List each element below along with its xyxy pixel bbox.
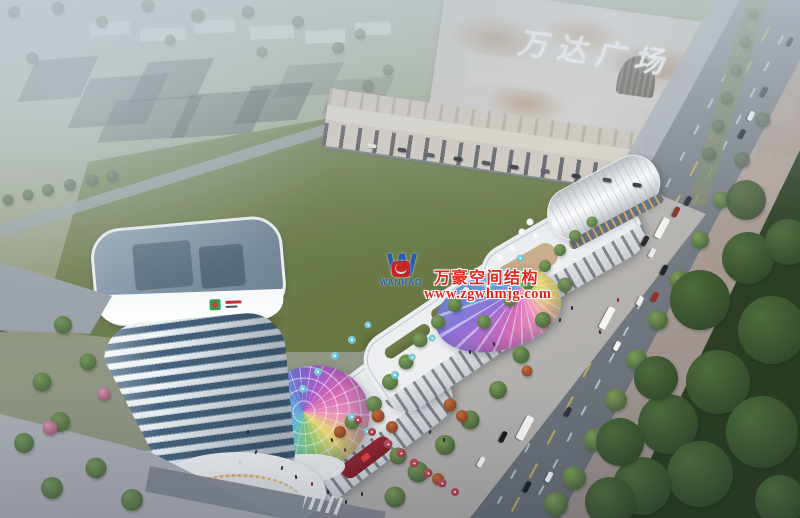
trees-sprite xyxy=(444,399,457,412)
umbrellas-sprite xyxy=(451,488,459,496)
people-sprite xyxy=(247,430,249,434)
umbrellas-sprite xyxy=(391,371,399,379)
trees-sprite xyxy=(23,190,34,201)
trees-sprite xyxy=(3,195,14,206)
trees-sprite xyxy=(362,80,374,92)
trees-sprite xyxy=(691,231,709,249)
trees-sprite xyxy=(242,6,255,19)
trees-sprite xyxy=(648,310,668,330)
tower-logo-text-bar xyxy=(225,300,241,304)
people-sprite xyxy=(443,438,446,442)
umbrellas-sprite xyxy=(348,336,356,344)
trees-sprite xyxy=(667,441,733,507)
trees-sprite xyxy=(522,366,533,377)
trees-sprite xyxy=(670,270,730,330)
trees-sprite xyxy=(383,65,394,76)
trees-sprite xyxy=(738,296,800,364)
umbrellas-sprite xyxy=(354,416,362,424)
umbrellas-sprite xyxy=(368,428,376,436)
umbrellas-sprite xyxy=(397,449,406,458)
umbrellas-sprite xyxy=(509,245,516,252)
trees-sprite xyxy=(334,426,346,438)
trees-sprite xyxy=(456,410,468,422)
people-sprite xyxy=(295,475,298,479)
people-sprite xyxy=(311,482,313,486)
trees-sprite xyxy=(257,47,268,58)
trees-sprite xyxy=(721,92,734,105)
tower-logo-text-bar xyxy=(226,305,238,307)
umbrellas-sprite xyxy=(299,385,307,393)
people-sprite xyxy=(361,492,363,496)
trees-sprite xyxy=(86,174,98,186)
watermark-website-url: www.zgwhmjg.com xyxy=(424,286,552,303)
trees-sprite xyxy=(80,354,97,371)
umbrellas-sprite xyxy=(365,322,372,329)
umbrellas-sprite xyxy=(527,219,534,226)
trees-sprite xyxy=(726,396,798,468)
trees-sprite xyxy=(386,421,398,433)
roof-plant-box xyxy=(132,240,194,291)
watermark-logo: W WANHAO xyxy=(372,250,430,304)
watermark-logo-badge xyxy=(392,261,410,277)
trees-sprite xyxy=(64,179,76,191)
trees-sprite xyxy=(52,2,65,15)
trees-sprite xyxy=(730,64,742,76)
trees-sprite xyxy=(739,36,751,48)
umbrellas-sprite xyxy=(519,229,526,236)
trees-sprite xyxy=(332,42,344,54)
trees-sprite xyxy=(165,35,176,46)
trees-sprite xyxy=(33,373,52,392)
trees-sprite xyxy=(756,113,771,128)
trees-sprite xyxy=(634,356,678,400)
trees-sprite xyxy=(477,315,491,329)
umbrellas-sprite xyxy=(409,354,416,361)
trees-sprite xyxy=(43,421,58,436)
trees-sprite xyxy=(587,217,598,228)
umbrellas-sprite xyxy=(517,255,524,262)
umbrellas-sprite xyxy=(429,335,436,342)
umbrellas-sprite xyxy=(331,352,339,360)
trees-sprite xyxy=(513,347,530,364)
trees-sprite xyxy=(712,120,725,133)
trees-sprite xyxy=(748,9,759,20)
watermark-company-name: 万豪空间结构 xyxy=(434,264,539,288)
trees-sprite xyxy=(96,16,108,28)
low-building xyxy=(250,25,294,40)
trees-sprite xyxy=(596,418,644,466)
trees-sprite xyxy=(42,184,54,196)
people-sprite xyxy=(327,490,329,494)
trees-sprite xyxy=(41,477,63,499)
trees-sprite xyxy=(413,333,428,348)
trees-sprite xyxy=(121,489,143,511)
people-sprite xyxy=(469,350,471,354)
trees-sprite xyxy=(558,278,573,293)
trees-sprite xyxy=(98,388,111,401)
umbrellas-sprite xyxy=(384,440,393,449)
trees-sprite xyxy=(489,381,507,399)
trees-sprite xyxy=(734,152,750,168)
umbrellas-sprite xyxy=(438,479,447,488)
trees-sprite xyxy=(702,147,716,161)
tower-logo-icon xyxy=(209,299,220,310)
trees-sprite xyxy=(431,315,445,329)
trees-sprite xyxy=(292,16,304,28)
trees-sprite xyxy=(142,0,155,13)
umbrellas-sprite xyxy=(533,233,539,239)
trees-sprite xyxy=(54,316,72,334)
trees-sprite xyxy=(385,487,406,508)
umbrellas-sprite xyxy=(410,459,419,468)
trees-sprite xyxy=(726,180,766,220)
trees-sprite xyxy=(562,466,586,490)
trees-sprite xyxy=(544,492,568,516)
trees-sprite xyxy=(372,410,385,423)
umbrellas-sprite xyxy=(424,469,433,478)
trees-sprite xyxy=(605,389,627,411)
umbrellas-sprite xyxy=(314,368,322,376)
watermark-logo-subtext: WANHAO xyxy=(372,278,430,287)
trees-sprite xyxy=(191,9,205,23)
people-sprite xyxy=(571,306,573,310)
trees-sprite xyxy=(435,435,455,455)
trees-sprite xyxy=(8,6,20,18)
low-building xyxy=(140,27,186,42)
trees-sprite xyxy=(535,312,551,328)
trees-sprite xyxy=(86,458,107,479)
trees-sprite xyxy=(539,260,551,272)
aerial-rendering: 万达广场 xyxy=(0,0,800,518)
trees-sprite xyxy=(14,433,34,453)
trees-sprite xyxy=(554,244,566,256)
trees-sprite xyxy=(569,230,581,242)
roof-plant-box xyxy=(198,243,245,289)
trees-sprite xyxy=(26,52,38,64)
umbrellas-sprite xyxy=(497,255,504,262)
trees-sprite xyxy=(755,475,800,518)
trees-sprite xyxy=(355,29,366,40)
trees-sprite xyxy=(106,170,118,182)
